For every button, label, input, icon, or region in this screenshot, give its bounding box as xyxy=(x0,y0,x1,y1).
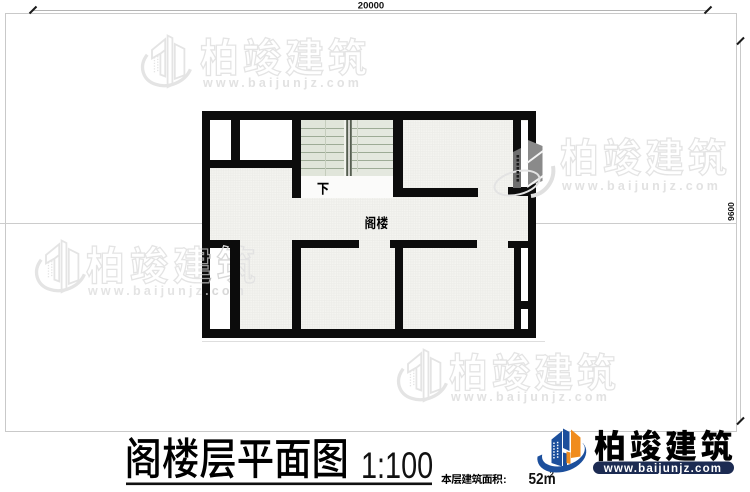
svg-text:www.baijunjz.com: www.baijunjz.com xyxy=(450,390,610,404)
svg-text:9600: 9600 xyxy=(726,202,736,221)
svg-text::: : xyxy=(503,474,507,486)
svg-text:1:100: 1:100 xyxy=(361,446,433,487)
svg-text:www.baijunjz.com: www.baijunjz.com xyxy=(202,76,362,90)
svg-text:www.baijunjz.com: www.baijunjz.com xyxy=(603,463,722,475)
svg-text:www.baijunjz.com: www.baijunjz.com xyxy=(561,179,721,193)
svg-text:20000: 20000 xyxy=(358,1,384,12)
